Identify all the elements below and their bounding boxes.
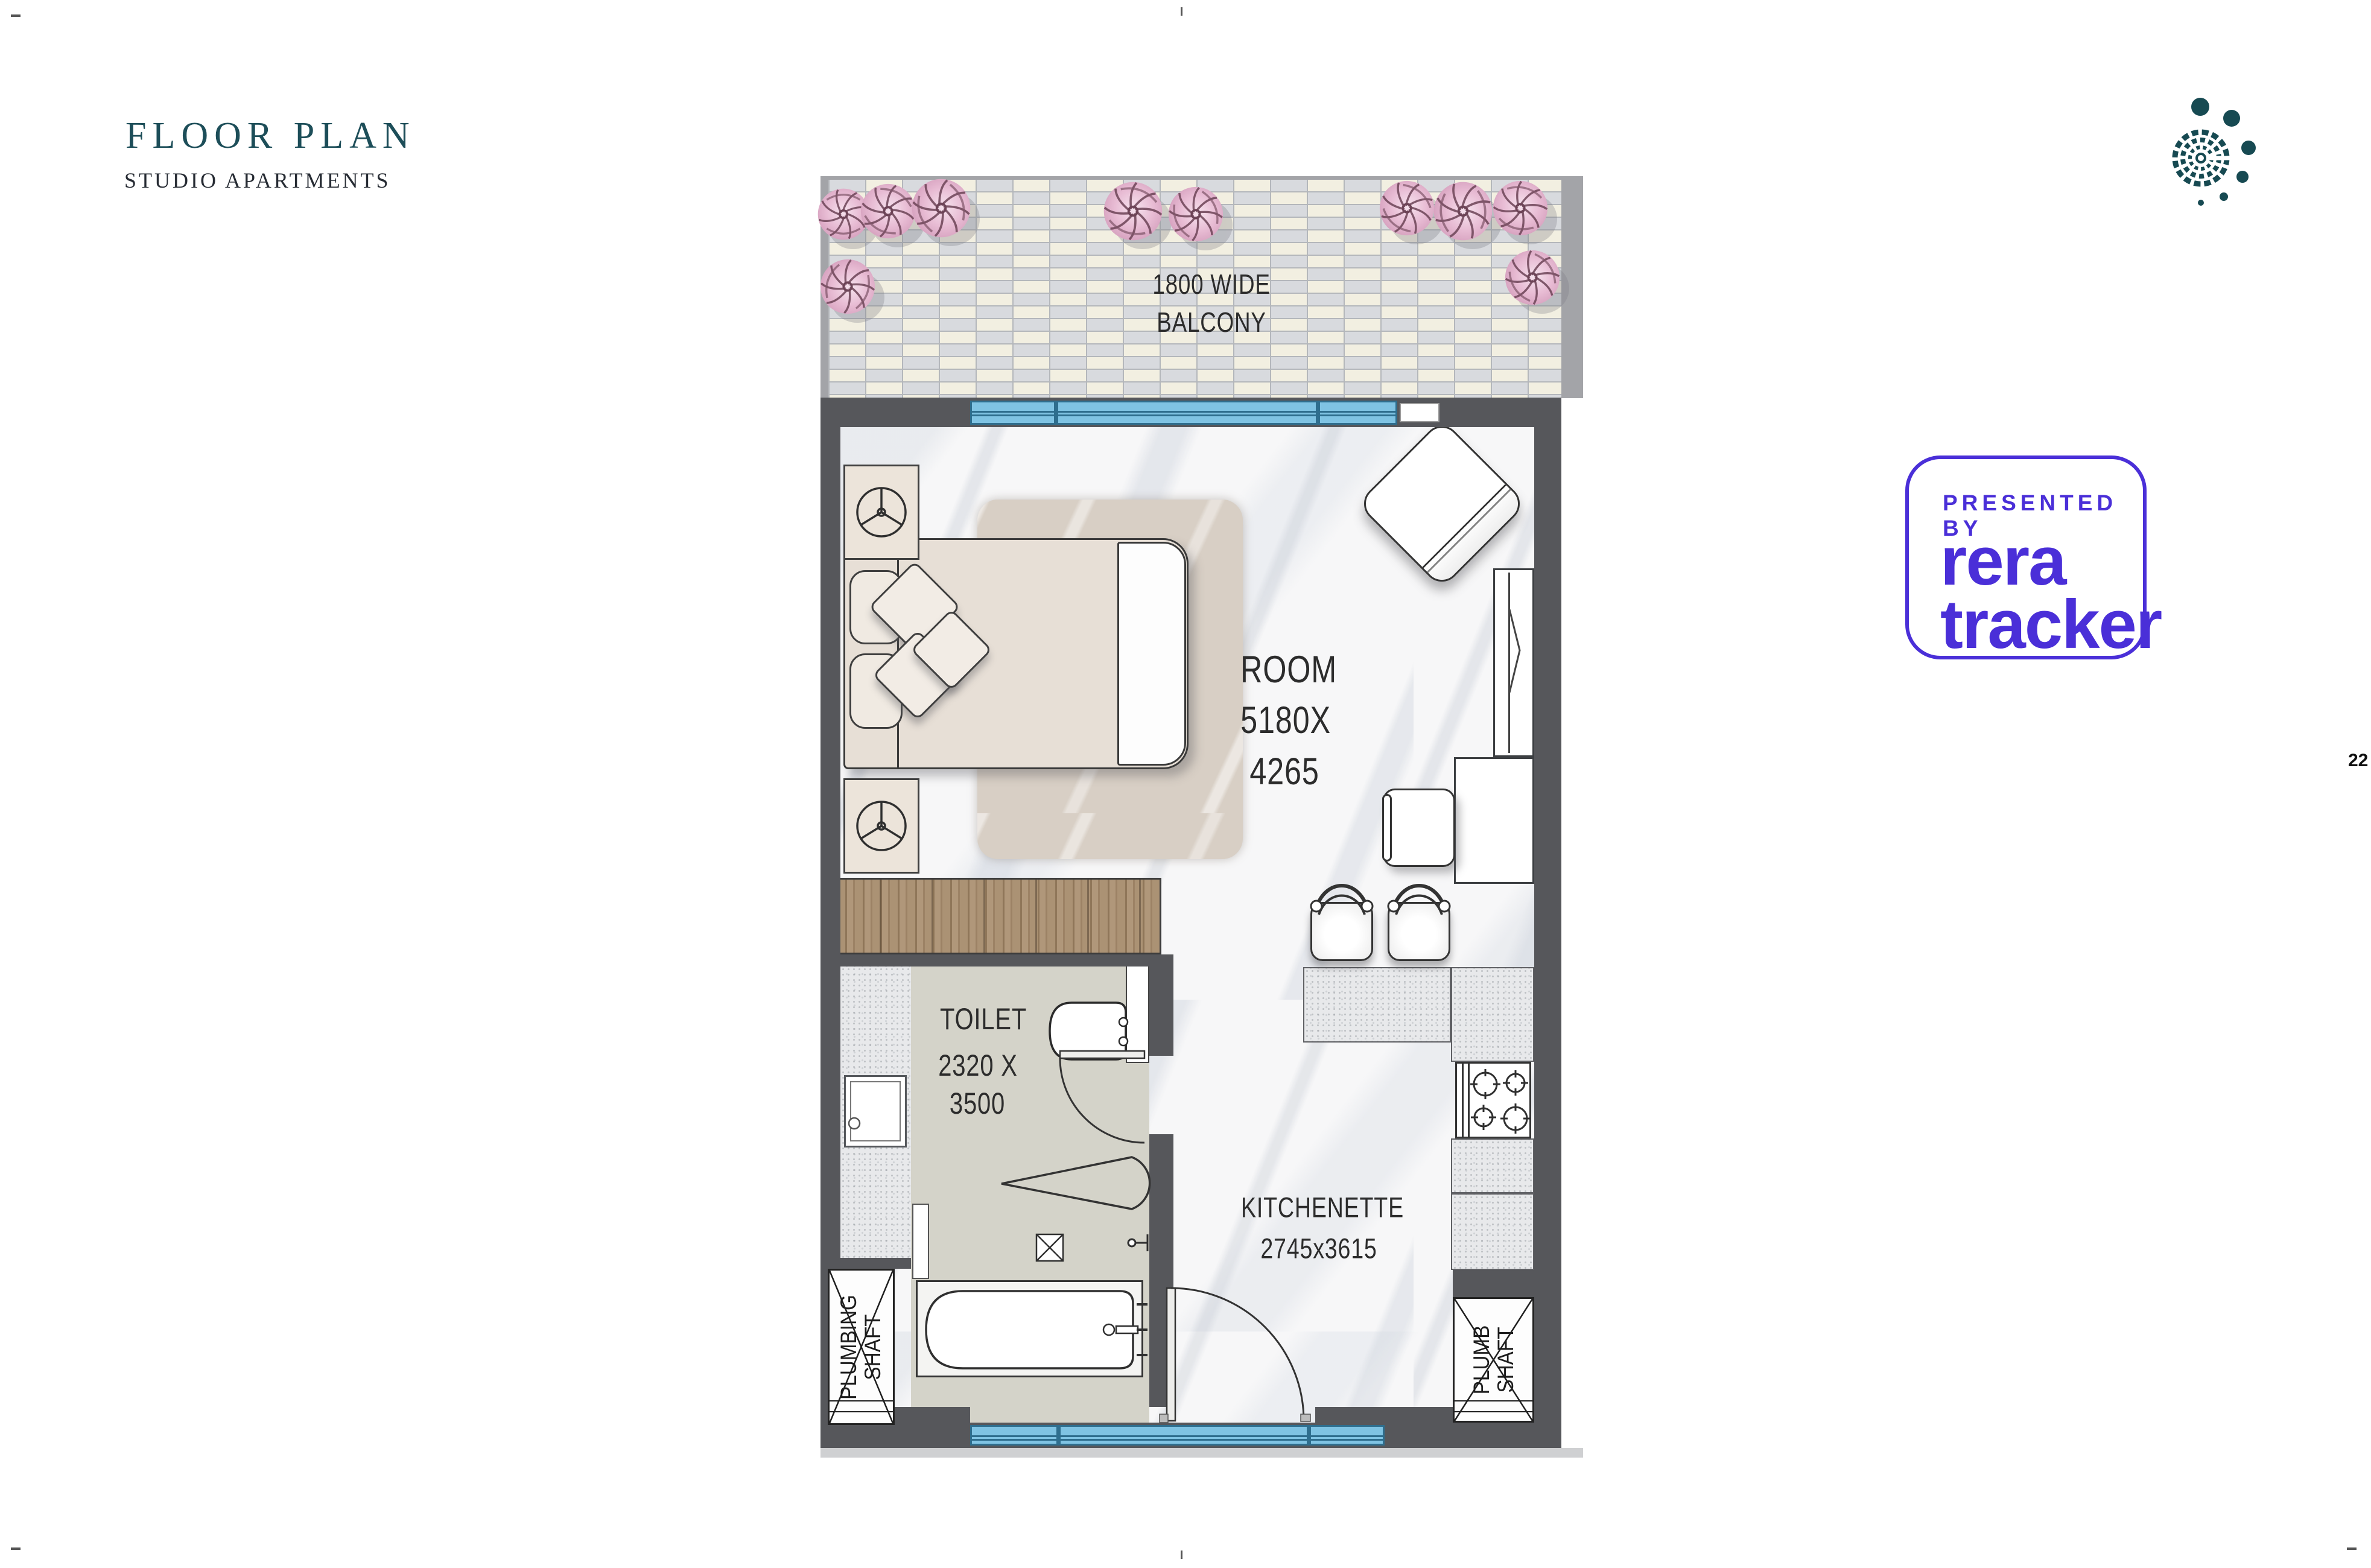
stove [1455, 1062, 1531, 1138]
wall-console [1493, 568, 1534, 757]
crop-mark [2347, 1547, 2357, 1550]
crop-mark [1181, 1551, 1182, 1559]
plumbing-shaft-label: PLUMBING SHAFT [837, 1295, 885, 1400]
brand-line2: tracker [1940, 586, 2161, 663]
crop-mark [11, 1547, 21, 1550]
room-label-line2: 5180X [1240, 699, 1331, 742]
kitchen-counter [1451, 1193, 1534, 1270]
plumbing-shaft-line1: PLUMBING [837, 1295, 861, 1400]
bathtub [916, 1280, 1143, 1377]
stove-edge-line [1468, 1064, 1470, 1137]
kitchenette-label-line2: 2745x3615 [1260, 1232, 1377, 1265]
brand-logo-text: rera tracker [1940, 530, 2161, 657]
stool [1310, 902, 1373, 961]
wall-opening [1400, 403, 1439, 422]
page-number: 22 [2348, 751, 2368, 771]
window-mullion [1316, 402, 1320, 423]
kitchen-counter [1451, 1138, 1534, 1193]
sink [844, 1075, 907, 1147]
wardrobe [828, 878, 1161, 954]
balcony-left-wall [820, 180, 828, 398]
desk [1454, 757, 1534, 884]
balcony-sliding-window [970, 401, 1397, 425]
desk-chair [1383, 789, 1455, 867]
toilet-label-line1: TOILET [940, 1001, 1027, 1036]
toilet-label-line3: 3500 [950, 1086, 1005, 1121]
shaft-wall [1453, 1270, 1534, 1297]
sink-basin [850, 1081, 901, 1141]
window-mullion [1056, 1427, 1061, 1444]
south-sill [820, 1448, 1583, 1458]
wall-below-wardrobe [828, 954, 1173, 967]
plumb-shaft-label: PLUMB SHAFT [1470, 1325, 1518, 1395]
kitchen-counter [1303, 967, 1451, 1043]
nightstand [843, 778, 919, 874]
page-subtitle: STUDIO APARTMENTS [124, 168, 391, 193]
balcony-label-line1: 1800 WIDE [1152, 268, 1270, 300]
toilet-label-line2: 2320 X [938, 1048, 1018, 1083]
toilet-ledge [1126, 964, 1149, 1063]
window-mullion [1054, 402, 1058, 423]
crop-mark [11, 14, 21, 17]
entry-sliding-window [970, 1425, 1385, 1446]
wall-niche [912, 1204, 929, 1279]
plumb-shaft-line1: PLUMB [1470, 1325, 1494, 1395]
toilet-partition-wall [1149, 1134, 1173, 1407]
nightstand [843, 465, 919, 560]
bed-sheet [1117, 542, 1186, 766]
toilet-partition-wall [1149, 967, 1173, 1056]
kitchenette-label-line1: KITCHENETTE [1241, 1191, 1404, 1224]
kitchen-counter [1451, 967, 1534, 1062]
room-label-line1: ROOM [1240, 648, 1337, 691]
window-mullion [1307, 1427, 1311, 1444]
brochure-page: FLOOR PLAN STUDIO APARTMENTS 22 PRESENTE… [0, 0, 2371, 1568]
shaft-wall [840, 1258, 911, 1269]
stove-edge-line [1462, 1064, 1464, 1137]
east-wall [1534, 398, 1561, 1448]
mandala-dots-logo [2154, 78, 2287, 223]
crop-mark [1181, 7, 1182, 16]
balcony-label-line2: BALCONY [1157, 306, 1266, 338]
page-title: FLOOR PLAN [125, 115, 416, 157]
stool [1388, 902, 1450, 961]
console-line [1508, 573, 1510, 753]
plumb-shaft-line2: SHAFT [1494, 1325, 1518, 1395]
room-label-line3: 4265 [1249, 750, 1319, 793]
balcony-right-wall [1561, 180, 1583, 398]
plumbing-shaft-line2: SHAFT [861, 1295, 885, 1400]
desk-chair-back [1382, 794, 1392, 862]
presented-by-badge: PRESENTED BY rera tracker [1905, 455, 2147, 659]
